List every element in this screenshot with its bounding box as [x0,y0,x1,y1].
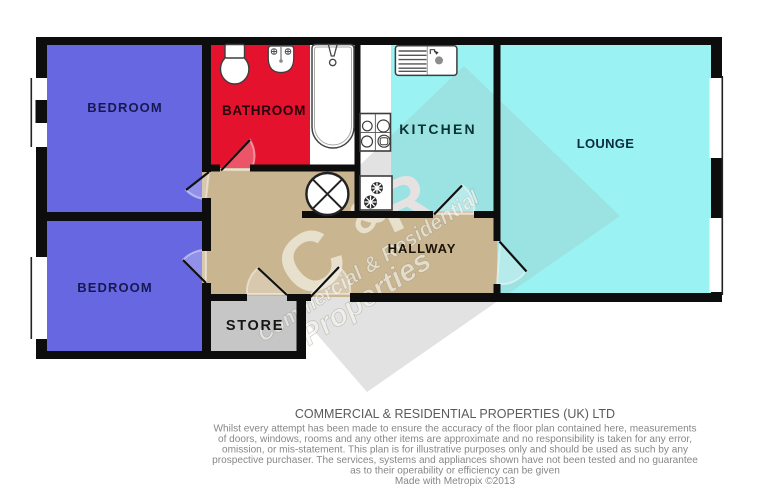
svg-text:BEDROOM: BEDROOM [77,280,153,295]
svg-text:as to their operability or eff: as to their operability or efficiency ca… [350,466,560,477]
svg-text:prospective purchaser. The ser: prospective purchaser. The services, sys… [212,455,698,466]
svg-text:COMMERCIAL & RESIDENTIAL PROPE: COMMERCIAL & RESIDENTIAL PROPERTIES (UK)… [295,407,615,421]
svg-text:BEDROOM: BEDROOM [87,100,163,115]
svg-text:LOUNGE: LOUNGE [577,136,634,151]
svg-text:omission, or mis-statement. Th: omission, or mis-statement. This plan is… [222,445,689,456]
svg-text:of doors, windows, rooms and a: of doors, windows, rooms and any other i… [218,434,692,445]
svg-text:HALLWAY: HALLWAY [388,241,457,256]
svg-text:Whilst every attempt has been: Whilst every attempt has been made to en… [213,424,696,435]
svg-text:KITCHEN: KITCHEN [399,121,477,137]
svg-text:STORE: STORE [226,318,284,334]
svg-text:BATHROOM: BATHROOM [222,103,306,118]
svg-text:Made with Metropix ©2013: Made with Metropix ©2013 [395,476,516,487]
